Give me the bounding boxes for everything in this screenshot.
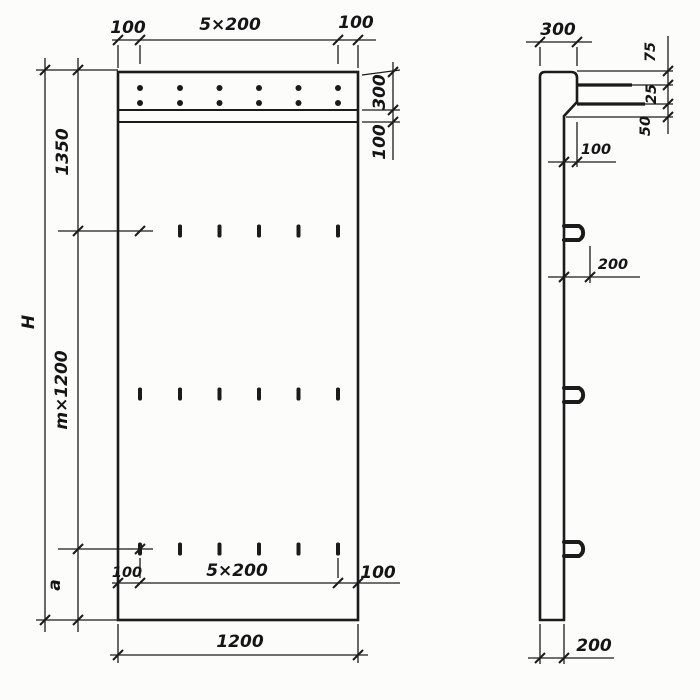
dim-taper-100: 100: [581, 142, 611, 158]
anchor-dot: [217, 100, 223, 106]
loop-1: [564, 226, 583, 240]
slot-mark: [257, 388, 261, 401]
dim-top-right: 100: [338, 13, 374, 33]
anchor-dot: [177, 100, 183, 106]
slot-mark: [297, 388, 301, 401]
slot-marks: [138, 225, 340, 556]
dim-loop-200: 200: [598, 257, 628, 273]
slot-mark: [336, 225, 340, 238]
anchor-dots: [137, 85, 341, 106]
slot-mark: [336, 543, 340, 556]
dim-25: 25: [644, 84, 660, 104]
dim-a: a: [45, 579, 65, 590]
slot-mark: [218, 388, 222, 401]
slot-mark: [218, 543, 222, 556]
loop-3: [564, 542, 583, 556]
anchor-dot: [137, 100, 143, 106]
panel-outline: [118, 72, 358, 620]
loop-2: [564, 388, 583, 402]
slot-mark: [336, 388, 340, 401]
slot-mark: [257, 225, 261, 238]
slot-mark: [297, 225, 301, 238]
anchor-dot: [335, 100, 341, 106]
slot-mark: [178, 543, 182, 556]
anchor-dot: [296, 85, 302, 91]
anchor-dot: [177, 85, 183, 91]
dim-top-left: 100: [110, 18, 146, 38]
dim-bottom-inner-left: 100: [112, 565, 142, 581]
dim-bottom-inner-center: 5×200: [206, 561, 268, 581]
anchor-dot: [217, 85, 223, 91]
panel-drawing: 100 5×200 100 300 100 H 1350 m×1200 a 10…: [0, 0, 700, 700]
drawing-sheet: 100 5×200 100 300 100 H 1350 m×1200 a 10…: [0, 0, 700, 700]
dim-top-center: 5×200: [199, 15, 261, 35]
slot-mark: [178, 388, 182, 401]
dim-bottom-inner-right: 100: [360, 563, 396, 583]
anchor-dot: [335, 85, 341, 91]
anchor-dot: [256, 85, 262, 91]
profile-outline: [540, 72, 577, 620]
dim-75: 75: [643, 42, 659, 62]
anchor-dot: [137, 85, 143, 91]
dim-300: 300: [540, 20, 576, 40]
slot-mark: [257, 543, 261, 556]
anchor-dot: [256, 100, 262, 106]
dim-50: 50: [638, 116, 654, 136]
dim-strip-100: 100: [370, 124, 390, 160]
front-view: 100 5×200 100 300 100 H 1350 m×1200 a 10…: [19, 13, 400, 663]
slot-mark: [178, 225, 182, 238]
slot-mark: [138, 388, 142, 401]
side-view: 75 25 50 100 200 300 200: [526, 20, 673, 664]
dim-band-300: 300: [370, 74, 390, 110]
slot-mark: [297, 543, 301, 556]
dim-height-H: H: [19, 315, 39, 329]
anchor-dot: [296, 100, 302, 106]
dim-1200: 1200: [216, 632, 263, 652]
slot-mark: [218, 225, 222, 238]
dim-1350: 1350: [53, 128, 73, 175]
dim-thickness-200: 200: [576, 636, 612, 656]
dim-m1200: m×1200: [52, 350, 72, 429]
